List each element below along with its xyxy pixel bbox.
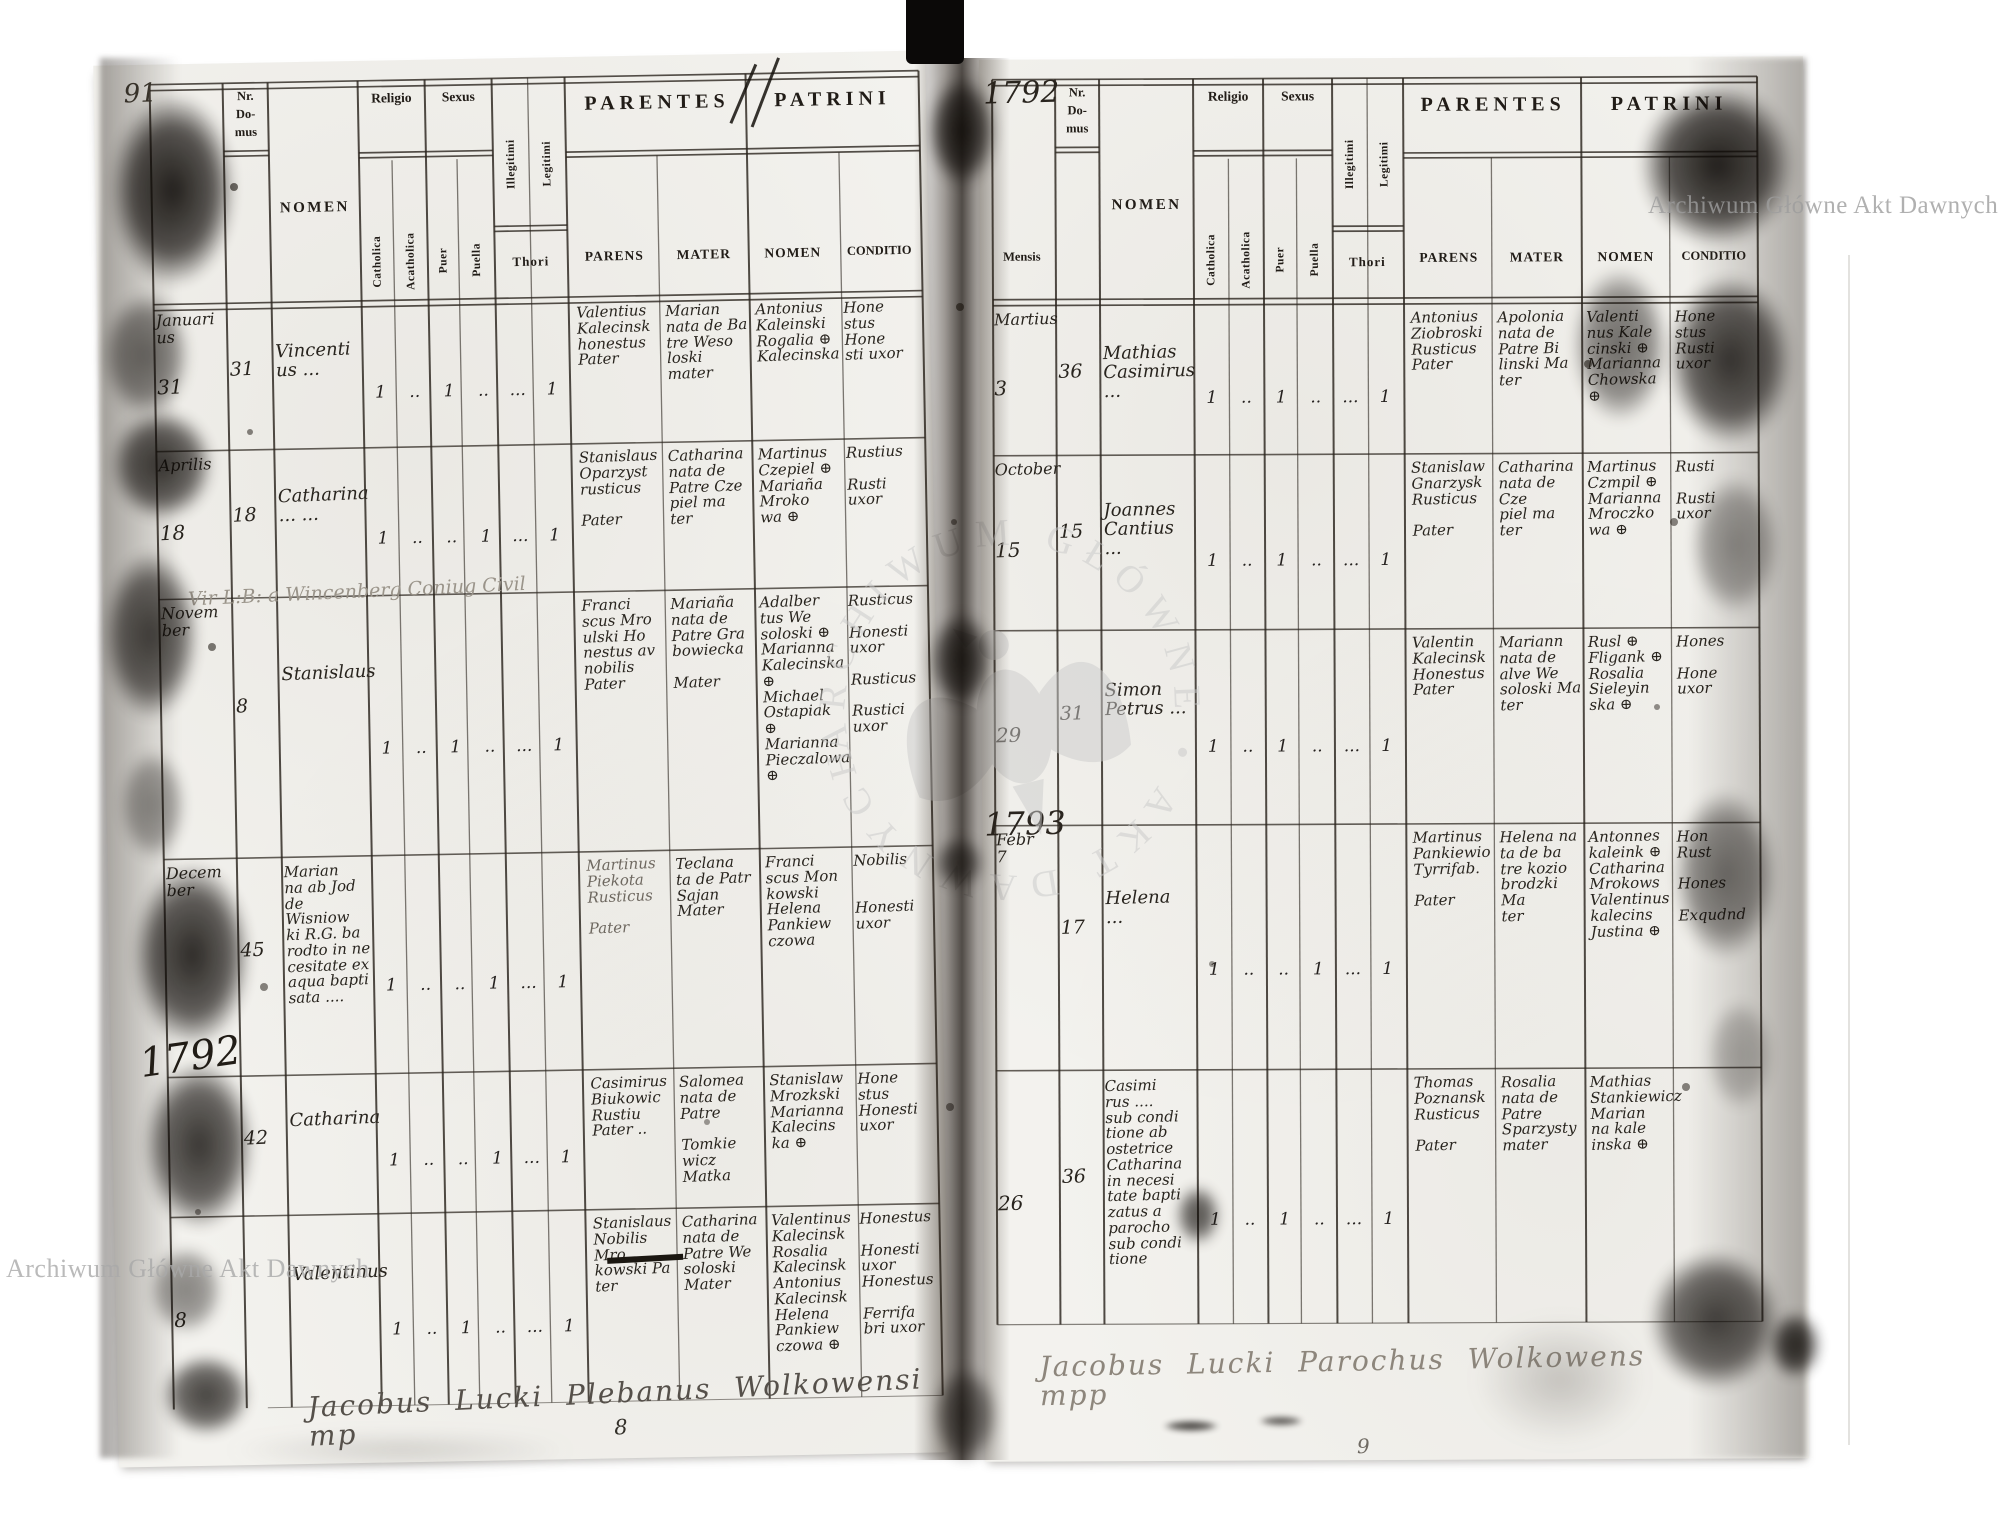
col-header-illegitimate: Illegitimi	[492, 106, 530, 223]
entry-godparents: Franci scus Mon kowski Helena Pankiew cz…	[765, 852, 851, 950]
entry-mother: Catharina nata de Patre We soloski Mater	[682, 1212, 767, 1294]
ink-stain	[918, 595, 1004, 725]
tick-mark: 1	[1370, 959, 1405, 979]
ink-stain	[1555, 240, 1685, 450]
tick-mark: ...	[518, 1316, 553, 1337]
entry-tick-marks: 1....1...1	[374, 972, 580, 996]
entry-house-number: 8	[236, 696, 279, 718]
entry-condition: Hone stus Hone sti uxor	[843, 298, 923, 364]
ink-stain	[1612, 55, 1822, 275]
tick-mark: 1	[1264, 387, 1299, 407]
tick-mark: 1	[1369, 736, 1404, 756]
tick-mark: 1	[535, 379, 570, 400]
entry-house-number: 31	[229, 359, 272, 381]
tick-mark: 1	[477, 973, 512, 994]
tick-mark: ...	[507, 736, 542, 757]
tick-mark: ..	[1266, 959, 1301, 979]
smudge	[150, 1430, 650, 1470]
tick-mark: 1	[1196, 737, 1231, 757]
col-header-girl: Puella	[1297, 222, 1333, 296]
tick-mark: 1	[1301, 959, 1336, 979]
entry-name: Catharina ... ...	[278, 485, 365, 526]
tick-mark: 1	[1195, 551, 1230, 571]
tick-mark: ..	[1232, 959, 1267, 979]
tick-mark: ..	[1299, 551, 1334, 571]
ink-speckles	[0, 0, 4, 4]
ink-stain	[1655, 760, 1795, 990]
col-header-father: PARENS	[570, 247, 659, 265]
tick-mark: 1	[552, 1316, 587, 1337]
tick-mark: 1	[546, 972, 581, 993]
col-header-catholic: Catholica	[1194, 223, 1229, 297]
col-header-boy: Puer	[427, 223, 459, 298]
entry-mother: Mariaña nata de Patre Gra bowiecka Mater	[670, 594, 756, 692]
col-header-religion: Religio	[358, 90, 425, 107]
entry-tick-marks: 1....1...1	[1197, 959, 1405, 980]
entry-house-number: 36	[1062, 1166, 1102, 1187]
col-header-legitimate: Legitimi	[528, 105, 566, 222]
binding-gutter	[914, 58, 1010, 1460]
tick-mark: ..	[1229, 387, 1264, 407]
tick-mark: ..	[466, 380, 501, 401]
col-header-house-number: Nr. Do- mus	[1055, 83, 1099, 138]
entry-name: Simon Petrus ...	[1104, 680, 1191, 720]
tick-mark: ...	[1337, 1209, 1372, 1229]
entry-godparents: Adalber tus We soloski ⊕ Marianna Kaleci…	[759, 592, 848, 784]
col-header-thori: Thori	[1333, 254, 1402, 270]
tick-mark: 1	[1371, 1209, 1406, 1229]
tick-mark: ..	[408, 974, 443, 995]
entry-father: Valentin Kalecinsk Honestus Pater	[1412, 634, 1493, 699]
col-header-sex: Sexus	[1263, 88, 1332, 104]
col-header-illegitimate: Illegitimi	[1332, 106, 1368, 222]
entry-father: Stanislaw Gnarzysk Rusticus Pater	[1411, 459, 1492, 540]
tick-mark: 1	[377, 1150, 412, 1171]
entry-godparents: Valentinus Kalecinsk Rosalia Kalecinsk A…	[771, 1210, 859, 1355]
entry-father: Martinus Piekota Rusticus Pater	[586, 855, 673, 937]
tick-mark: ...	[1333, 387, 1368, 407]
tick-mark: 1	[370, 738, 405, 759]
tick-mark: ...	[514, 1148, 549, 1169]
smudge	[1440, 1290, 1680, 1470]
entry-tick-marks: 1..1.....1	[380, 1316, 586, 1340]
entry-house-number: 15	[1059, 521, 1099, 542]
col-header-mother: MATER	[659, 246, 749, 264]
entry-father: Stanislaus Oparzyst rusticus Pater	[579, 448, 666, 530]
tick-mark: ..	[473, 736, 508, 757]
tick-mark: 1	[1368, 386, 1403, 406]
ink-stain	[1675, 450, 1795, 640]
tick-mark: 1	[438, 737, 473, 758]
entry-house-number: 17	[1060, 918, 1100, 939]
tick-mark: ...	[511, 972, 546, 993]
entry-mother: Mariann nata de alve We soloski Ma ter	[1499, 633, 1583, 714]
col-header-godparents: PATRINI	[746, 87, 919, 113]
entry-godparents: Mathias Stankiewicz Marian na kale inska…	[1590, 1073, 1673, 1154]
ink-stain	[86, 520, 216, 750]
tick-mark: 1	[1267, 1209, 1302, 1229]
ink-stain	[136, 1230, 236, 1350]
ink-stain	[1152, 1418, 1230, 1434]
ink-stain	[1760, 1300, 1830, 1390]
col-header-boy: Puer	[1264, 222, 1297, 296]
col-header-thori: Thori	[495, 253, 567, 270]
col-header-parents: PARENTES	[1405, 93, 1581, 117]
entry-name: Mathias Casimirus ...	[1103, 343, 1190, 402]
tick-mark: ...	[1336, 959, 1371, 979]
tick-mark: 1	[541, 735, 576, 756]
col-header-catholic: Catholica	[360, 224, 394, 299]
tick-mark: 1	[1368, 550, 1403, 570]
entry-mother: Helena na ta de ba tre kozio brodzki Ma …	[1499, 828, 1583, 925]
tick-mark: ...	[503, 526, 538, 547]
col-header-sex: Sexus	[425, 88, 492, 105]
entry-name: Joannes Cantius ...	[1103, 499, 1190, 558]
entry-mother: Catharina nata de Cze piel ma ter	[1498, 458, 1582, 539]
archive-watermark-text: Archiwum Główne Akt Dawnych	[1648, 192, 1998, 220]
tick-mark: ..	[443, 974, 478, 995]
book-spine	[906, 0, 964, 64]
tick-mark: 1	[1265, 737, 1300, 757]
col-header-girl: Puella	[458, 222, 495, 297]
entry-godparents: Antonius Kaleinski Rogalia ⊕ Kalecinska	[755, 299, 839, 365]
tick-mark: 1	[374, 975, 409, 996]
entry-father: Thomas Poznansk Rusticus Pater	[1414, 1074, 1495, 1155]
tick-mark: ..	[404, 738, 439, 759]
entry-tick-marks: 1..1.....1	[1198, 1209, 1406, 1230]
tick-mark: ..	[1300, 737, 1335, 757]
col-header-legitimate: Legitimi	[1367, 106, 1402, 222]
entry-name: Vincenti us ...	[275, 340, 362, 381]
tick-mark: ..	[1230, 551, 1265, 571]
col-header-religion: Religio	[1193, 89, 1263, 105]
tick-mark: 1	[380, 1319, 415, 1340]
ink-stain	[1695, 980, 1785, 1130]
entry-godparents: Rusl ⊕ Fligank ⊕ Rosalia Sieleyin ska ⊕	[1588, 633, 1671, 714]
tick-mark: ..	[415, 1318, 450, 1339]
tick-mark: 1	[432, 381, 467, 402]
col-header-mother: MATER	[1492, 249, 1582, 265]
tick-mark: ...	[1334, 550, 1369, 570]
entry-tick-marks: 1....1...1	[377, 1147, 583, 1171]
next-sheet-edge	[1848, 255, 1850, 1445]
col-header-father: PARENS	[1406, 250, 1492, 266]
col-header-name: NOMEN	[1100, 197, 1194, 214]
entry-mother: Rosalia nata de Patre Sparzysty mater	[1501, 1073, 1585, 1154]
entry-tick-marks: 1..1.....1	[1195, 550, 1403, 571]
ink-stain	[1250, 1414, 1312, 1428]
entry-name: Catharina	[289, 1109, 376, 1131]
col-header-name: NOMEN	[270, 199, 360, 218]
tick-mark: ..	[411, 1149, 446, 1170]
tick-mark: 1	[469, 527, 504, 548]
entry-house-number: 18	[232, 505, 275, 527]
entry-mother: Catharina nata de Patre Cze piel ma ter	[668, 446, 753, 528]
entry-mother: Teclana ta de Patr Sajan Mater	[675, 854, 759, 920]
entry-father: Casimirus Biukowic Rustiu Pater ..	[590, 1073, 676, 1139]
ink-stain	[92, 390, 232, 540]
tick-mark: ..	[400, 528, 435, 549]
tick-mark: ..	[1298, 387, 1333, 407]
tick-mark: ..	[1233, 1209, 1268, 1229]
entry-father: Antonius Ziobroski Rusticus Pater	[1410, 309, 1491, 374]
ink-stain	[1168, 1175, 1228, 1255]
tick-mark: 1	[537, 525, 572, 546]
tick-mark: ..	[446, 1149, 481, 1170]
tick-mark: ...	[500, 379, 535, 400]
entry-tick-marks: 1..1.....1	[363, 379, 569, 403]
entry-godparents: Martinus Czmpil ⊕ Marianna Mroczko wa ⊕	[1587, 458, 1670, 539]
ink-stain	[920, 1350, 1010, 1480]
tick-mark: 1	[1197, 959, 1232, 979]
entry-mother: Marian nata de Ba tre Weso loski mater	[665, 301, 750, 383]
col-header-condition: CONDITIO	[837, 243, 922, 260]
tick-mark: 1	[549, 1147, 584, 1168]
entry-name: Marian na ab Jod de Wisniow ki R.G. ba r…	[283, 861, 374, 1006]
entry-godparents: Stanislaw Mrozkski Marianna Kalecins ka …	[769, 1070, 854, 1152]
entry-father: Martinus Pankiewio Tyrrifab. Pater	[1412, 829, 1493, 910]
tick-mark: 1	[1264, 551, 1299, 571]
entry-name: Helena ...	[1105, 888, 1192, 928]
entry-tick-marks: 1..1.....1	[1196, 736, 1404, 757]
col-header-acatholic: Acatholica	[393, 224, 428, 299]
scanned-register-spread: Nr. Do- mus NOMEN Religio Sexus Catholic…	[0, 0, 2000, 1531]
page-number: 9	[1357, 1436, 1370, 1457]
col-header-godparent-name: NOMEN	[749, 244, 837, 262]
ink-stain	[926, 828, 992, 898]
tick-mark: 1	[366, 529, 401, 550]
tick-mark: 1	[1194, 387, 1229, 407]
tick-mark: ..	[434, 527, 469, 548]
tick-mark: 1	[449, 1317, 484, 1338]
entry-tick-marks: 1..1.....1	[370, 735, 576, 759]
entry-tick-marks: 1....1...1	[366, 525, 572, 549]
tick-mark: ..	[1302, 1209, 1337, 1229]
entry-tick-marks: 1..1.....1	[1194, 386, 1402, 407]
tick-mark: 1	[363, 382, 398, 403]
tick-mark: ..	[483, 1317, 518, 1338]
tick-mark: ..	[397, 381, 432, 402]
tick-mark: 1	[480, 1148, 515, 1169]
entry-father: Franci scus Mro ulski Ho nestus av nobil…	[581, 595, 669, 693]
tick-mark: ..	[1231, 737, 1266, 757]
ink-stain	[124, 1030, 274, 1260]
entry-mother: Salomea nata de Patre Tomkie wicz Matka	[679, 1072, 765, 1185]
entry-godparents: Martinus Czepiel ⊕ Mariaña Mroko wa ⊕	[758, 444, 843, 526]
archive-watermark-text: Archiwum Główne Akt Dawnych	[6, 1254, 370, 1284]
register-row: Novem ber 8 Stanislaus 1..1.....1 Franci…	[103, 585, 940, 860]
page-number: 8	[614, 1416, 628, 1439]
entry-house-number: 36	[1058, 362, 1098, 383]
col-header-acatholic: Acatholica	[1229, 223, 1264, 297]
tick-mark: ...	[1335, 736, 1370, 756]
entry-house-number: 31	[1060, 704, 1100, 725]
entry-name: Stanislaus	[281, 663, 368, 685]
col-header-parents: PARENTES	[567, 90, 747, 116]
ink-stain	[916, 56, 1008, 206]
entry-father: Valentius Kalecinsk honestus Pater	[576, 303, 662, 369]
